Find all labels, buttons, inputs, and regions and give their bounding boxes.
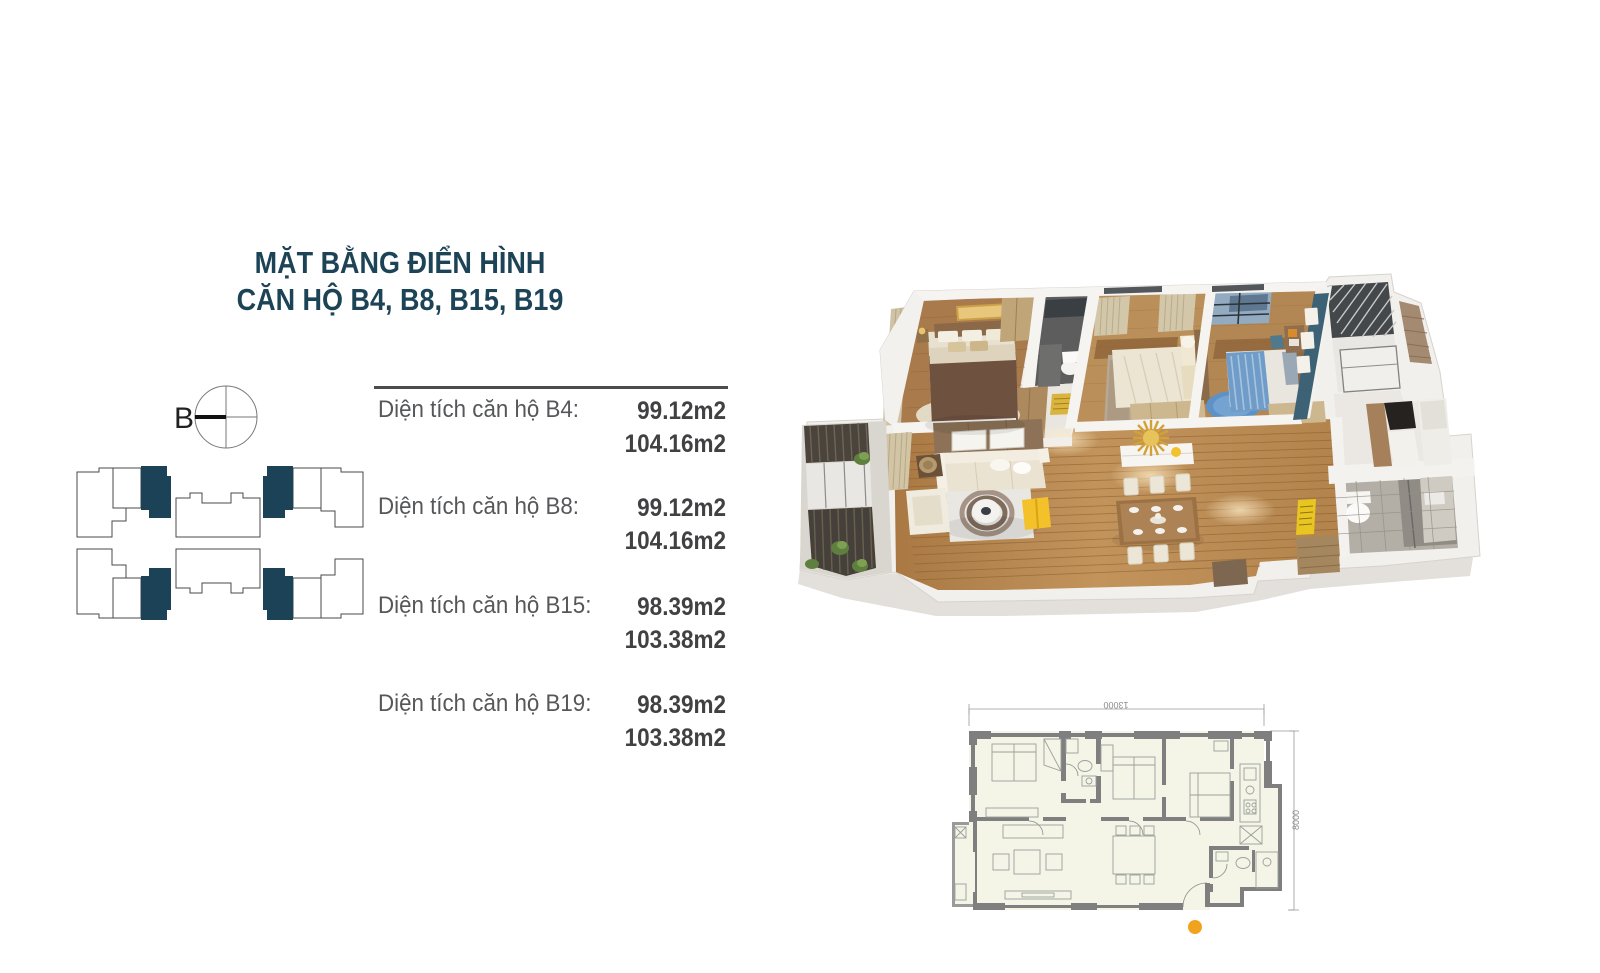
svg-text:8000: 8000 [1291, 810, 1301, 830]
svg-text:13000: 13000 [1103, 700, 1128, 710]
svg-text:B: B [174, 402, 194, 435]
